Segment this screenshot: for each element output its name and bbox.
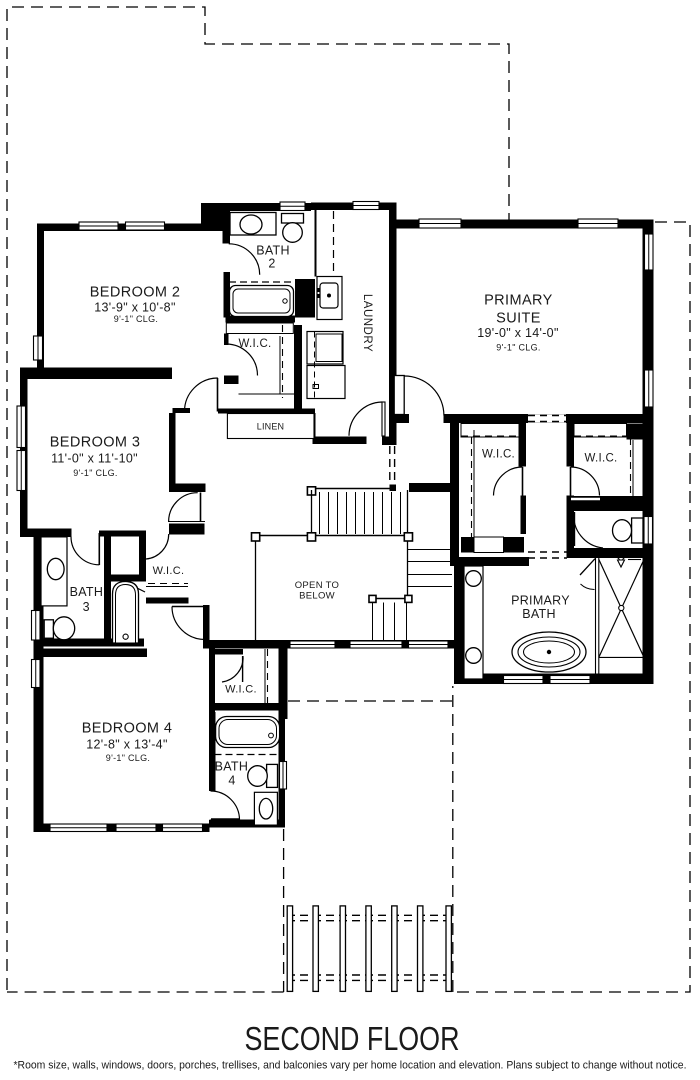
svg-text:LAUNDRY: LAUNDRY [361, 294, 373, 352]
svg-text:SUITE: SUITE [496, 311, 541, 327]
svg-text:W.I.C.: W.I.C. [482, 449, 515, 461]
svg-text:BEDROOM 3: BEDROOM 3 [50, 435, 141, 451]
svg-text:2: 2 [268, 257, 275, 271]
svg-text:3: 3 [83, 600, 90, 614]
svg-text:W.I.C.: W.I.C. [225, 684, 257, 696]
svg-text:BELOW: BELOW [299, 591, 335, 602]
svg-text:W.I.C.: W.I.C. [238, 338, 271, 350]
svg-text:LINEN: LINEN [257, 422, 285, 432]
svg-text:OPEN TO: OPEN TO [295, 580, 340, 591]
svg-text:SECOND FLOOR: SECOND FLOOR [245, 1020, 460, 1057]
svg-text:4: 4 [228, 774, 235, 788]
svg-text:W.I.C.: W.I.C. [153, 565, 185, 577]
svg-text:9'-1" CLG.: 9'-1" CLG. [106, 753, 150, 763]
svg-text:BEDROOM 4: BEDROOM 4 [82, 721, 173, 737]
svg-text:19'-0" x 14'-0": 19'-0" x 14'-0" [477, 326, 558, 340]
svg-text:BATH: BATH [522, 607, 556, 621]
svg-text:BEDROOM 2: BEDROOM 2 [90, 285, 181, 301]
svg-text:9'-1" CLG.: 9'-1" CLG. [73, 468, 117, 478]
svg-text:13'-9" x 10'-8": 13'-9" x 10'-8" [94, 301, 175, 315]
svg-text:PRIMARY: PRIMARY [511, 594, 570, 608]
svg-text:BATH: BATH [70, 585, 104, 599]
svg-text:11'-0" x 11'-10": 11'-0" x 11'-10" [51, 452, 138, 466]
svg-text:BATH: BATH [256, 244, 290, 258]
svg-text:9'-1" CLG.: 9'-1" CLG. [114, 314, 158, 324]
svg-text:12'-8" x 13'-4": 12'-8" x 13'-4" [86, 738, 167, 752]
svg-text:BATH: BATH [215, 760, 249, 774]
svg-text:9'-1" CLG.: 9'-1" CLG. [496, 343, 540, 353]
svg-text:*Room size, walls, windows, do: *Room size, walls, windows, doors, porch… [14, 1060, 687, 1072]
svg-text:PRIMARY: PRIMARY [484, 293, 553, 309]
svg-text:W.I.C.: W.I.C. [584, 453, 617, 465]
